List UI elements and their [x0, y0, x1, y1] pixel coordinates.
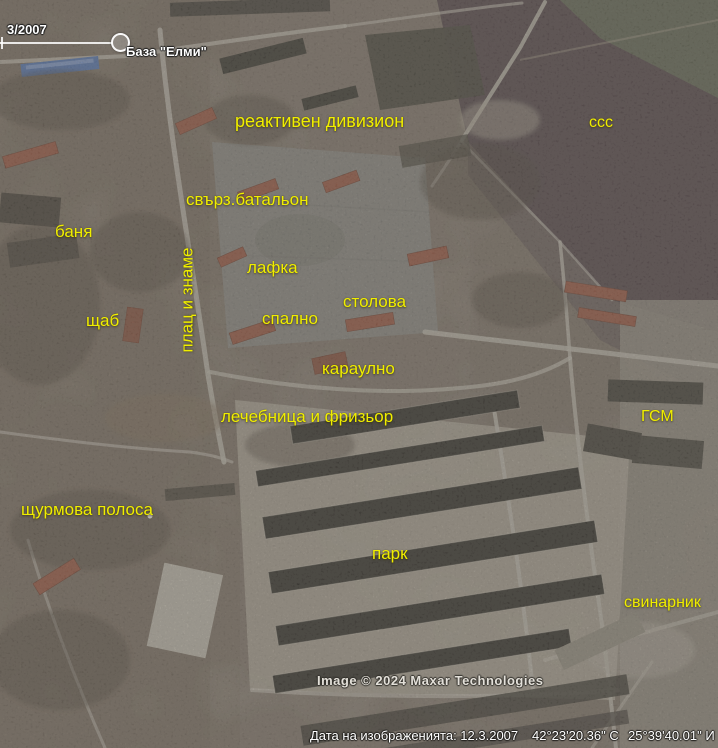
annotation-svinarnik[interactable]: свинарник — [624, 595, 701, 611]
annotation-lafka[interactable]: лафка — [247, 259, 298, 276]
annotation-reaktiven-divizion[interactable]: реактивен дивизион — [235, 112, 404, 130]
annotation-svarz-batalyon[interactable]: свърз.батальон — [186, 191, 308, 208]
map-viewport[interactable]: 3/2007 База "Елми" реактивен дивизион сс… — [0, 0, 718, 748]
annotation-sss[interactable]: ссс — [589, 115, 613, 131]
annotation-banya[interactable]: баня — [55, 223, 92, 240]
annotation-spalno[interactable]: спално — [262, 310, 318, 327]
annotation-plats-i-zname[interactable]: плац и знаме — [179, 247, 196, 352]
annotation-shtab[interactable]: щаб — [86, 312, 119, 329]
imagery-date-text: Дата на изображенията: 12.3.2007 — [310, 728, 518, 743]
latitude-readout: 42°23'20.36" С — [532, 728, 619, 743]
time-slider-track[interactable] — [0, 42, 112, 44]
annotation-karaulno[interactable]: караулно — [322, 360, 395, 377]
longitude-readout: 25°39'40.01" И — [628, 728, 715, 743]
imagery-copyright: Image © 2024 Maxar Technologies — [317, 674, 543, 687]
time-slider-date: 3/2007 — [7, 23, 47, 36]
annotation-shturmova-polosa[interactable]: щурмова полоса — [21, 501, 153, 518]
time-slider-tick — [1, 37, 3, 49]
placemark-label-baza-elmi[interactable]: База "Елми" — [126, 45, 207, 58]
annotation-park[interactable]: парк — [372, 545, 408, 562]
annotation-gsm[interactable]: ГСМ — [641, 409, 674, 425]
annotation-lechebnitsa-i-frizior[interactable]: лечебница и фризьор — [221, 408, 393, 425]
annotation-stolova[interactable]: столова — [343, 293, 406, 310]
